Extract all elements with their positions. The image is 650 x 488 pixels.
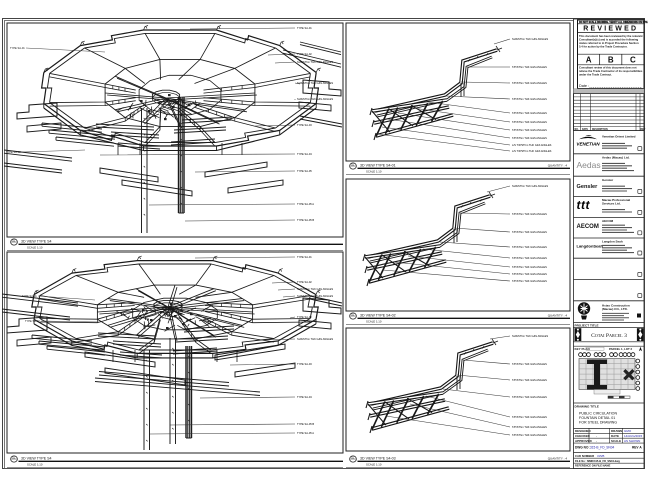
svg-text:SCALE 1:10: SCALE 1:10 [366,319,382,323]
svg-text:14/AUG/2015: 14/AUG/2015 [624,434,643,438]
svg-text:T/P/SThm THK G&S ANGLES: T/P/SThm THK G&S ANGLES [512,272,547,276]
svg-text:3D VIEW TYPE S4-02: 3D VIEW TYPE S4-02 [360,314,396,318]
svg-text:DRAWING TITLE: DRAWING TITLE [575,405,599,409]
svg-text:PROJECT TITLE: PROJECT TITLE [575,323,599,327]
svg-text:APPROVED: APPROVED [575,439,593,443]
svg-text:TYPE SA-02: TYPE SA-02 [297,280,312,284]
svg-text:T/P/SThm THK G&S ANGLES: T/P/SThm THK G&S ANGLES [512,279,547,283]
svg-text:T/P/SThm THK G&S ANGLES: T/P/SThm THK G&S ANGLES [512,378,547,382]
svg-text:Date :: Date : [579,84,589,88]
svg-text:under the Trade Contract.: under the Trade Contract. [579,72,612,76]
svg-text:B: B [608,56,614,65]
svg-text:QUANTITY : 4: QUANTITY : 4 [548,457,568,461]
svg-text:TYPE SA-04: TYPE SA-04 [297,395,312,399]
svg-text:3D VIEW TYPE S4: 3D VIEW TYPE S4 [21,457,52,461]
svg-text:3D VIEW TYPE S4-03: 3D VIEW TYPE S4-03 [360,457,396,461]
svg-text:Gensler: Gensler [577,184,599,190]
svg-text:T/P/SThm THK G&S ANGLES: T/P/SThm THK G&S ANGLES [512,265,547,269]
svg-text:PUBLIC CIRCULATION: PUBLIC CIRCULATION [579,411,617,415]
svg-text:CHECKED: CHECKED [575,434,591,438]
svg-text:FILE No : MMD/315-B_FD_SN04.d: FILE No : MMD/315-B_FD_SN04.dwg [575,459,620,463]
svg-text:3D VIEW TYPE S4-01: 3D VIEW TYPE S4-01 [360,164,396,168]
svg-text:(Macau) CO., LTD.: (Macau) CO., LTD. [602,307,628,311]
svg-text:SHS/SThm THK G&S ANGLES: SHS/SThm THK G&S ANGLES [297,97,333,101]
svg-text:315/B: 315/B [597,454,604,458]
svg-text:TYPE SA-05: TYPE SA-05 [297,169,312,173]
svg-text:T/P/SThm THK G&S ANGLES: T/P/SThm THK G&S ANGLES [512,230,547,234]
svg-text:SHS/SThm THK G&S ANGLES: SHS/SThm THK G&S ANGLES [512,334,548,338]
svg-text:T/P/SThm THK G&S ANGLES: T/P/SThm THK G&S ANGLES [512,395,547,399]
svg-text:DWG NO :: DWG NO : [575,446,590,450]
svg-text:Consultant review of this docu: Consultant review of this document does … [579,66,637,70]
svg-text:TYPE SA-02: TYPE SA-02 [297,315,312,319]
svg-text:L/S T/P/SThm THK G&S ANGLES: L/S T/P/SThm THK G&S ANGLES [512,143,552,147]
svg-text:TYPE SA-05 B: TYPE SA-05 B [297,422,314,426]
svg-text:Services Ltd.: Services Ltd. [602,202,621,206]
svg-text:GMO: GMO [624,429,632,433]
svg-text:T/P/SThm THK G&S ANGLES: T/P/SThm THK G&S ANGLES [512,425,547,429]
svg-text:SCALE: SCALE [611,439,621,443]
svg-text:TYPE SA-02: TYPE SA-02 [6,150,21,154]
svg-text:status referred to in Projec: status referred to in Project Procedure … [579,41,639,45]
svg-text:3D VIEW TYPE S4: 3D VIEW TYPE S4 [21,240,52,244]
svg-text:PARCEL 1, LOT 2: PARCEL 1, LOT 2 [609,347,632,351]
svg-text:T/P/SThm THK G&S ANGLES: T/P/SThm THK G&S ANGLES [512,120,547,124]
svg-text:C: C [630,56,636,65]
svg-text:SCALE 1:10: SCALE 1:10 [366,462,382,466]
svg-text:REV A: REV A [632,446,642,450]
svg-text:VENETIAN: VENETIAN [576,141,600,146]
svg-text:-: - [596,439,597,443]
svg-text:AECOM: AECOM [577,224,599,230]
svg-text:TYPE SA-01: TYPE SA-01 [297,255,312,259]
svg-text:T/P/SThm THK G&S ANGLES: T/P/SThm THK G&S ANGLES [512,81,547,85]
svg-text:A: A [586,56,592,65]
svg-text:REFERENCE ON FILE NAME: REFERENCE ON FILE NAME [575,464,611,468]
svg-text:TYPE SA-05 A: TYPE SA-05 A [297,202,314,206]
svg-text:SHS/SThm THK G&S ANGLES: SHS/SThm THK G&S ANGLES [297,81,333,85]
svg-text:Langdon Seah: Langdon Seah [602,240,623,244]
svg-text:-: - [596,434,597,438]
svg-text:T/P/SThm THK G&S ANGLES: T/P/SThm THK G&S ANGLES [512,128,547,132]
svg-text:LangdonSeah: LangdonSeah [577,244,604,249]
svg-text:This document has been reviewe: This document has been reviewed by the r… [579,34,643,38]
svg-text:T/P/SThm THK G&S ANGLES: T/P/SThm THK G&S ANGLES [512,212,547,216]
svg-text:Consultant(s)(s) and is accord: Consultant(s)(s) and is accorded the fol… [579,37,638,41]
svg-text:SHS/SThm THK G&S ANGLES: SHS/SThm THK G&S ANGLES [297,337,333,341]
svg-text:T/P/SThm THK G&S ANGLES: T/P/SThm THK G&S ANGLES [512,245,547,249]
svg-text:T/P/SThm THK G&S ANGLES: T/P/SThm THK G&S ANGLES [512,111,547,115]
svg-text:CAD NUMBER: CAD NUMBER [575,454,594,458]
svg-text:T/P/SThm THK G&S ANGLES: T/P/SThm THK G&S ANGLES [512,136,547,140]
svg-text:TYPE SA-04: TYPE SA-04 [297,152,312,156]
svg-text:AECOM: AECOM [602,219,614,223]
svg-text:T/P/SThm THK G&S ANGLES: T/P/SThm THK G&S ANGLES [512,65,547,69]
svg-text:SCALE 1:10: SCALE 1:10 [27,462,43,466]
svg-text:SCALE 1:10: SCALE 1:10 [366,169,382,173]
svg-text:DRAWN: DRAWN [611,429,622,433]
svg-text:T/P/SThm THK G&S ANGLES: T/P/SThm THK G&S ANGLES [512,362,547,366]
svg-text:FOR STEEL DRAWING: FOR STEEL DRAWING [579,421,617,425]
svg-text:Venetian Orient Limited: Venetian Orient Limited [602,134,636,138]
svg-text:TYPE SA-05 B: TYPE SA-05 B [297,218,314,222]
svg-text:TYPE SA-01: TYPE SA-01 [297,26,312,30]
svg-text:SCALE 1:10: SCALE 1:10 [27,245,43,249]
svg-text:L/S T/P/SThm THK G&S ANGLES: L/S T/P/SThm THK G&S ANGLES [512,149,552,153]
svg-text:QUANTITY : 4: QUANTITY : 4 [548,314,568,318]
svg-text:TYPE SA-02: TYPE SA-02 [25,319,40,323]
svg-text:T/P/SThm THK G&S ANGLES: T/P/SThm THK G&S ANGLES [512,415,547,419]
svg-text:T/P/SThm THK G&S ANGLES: T/P/SThm THK G&S ANGLES [512,256,547,260]
svg-text:AS SHOWN: AS SHOWN [624,439,640,443]
svg-text:Gensler: Gensler [602,178,614,182]
svg-text:SHS/SThm THK G&S ANGLES: SHS/SThm THK G&S ANGLES [512,37,548,41]
svg-text:TYPE SA-01: TYPE SA-01 [10,46,25,50]
svg-text:T/P/SThm THK G&S ANGLES: T/P/SThm THK G&S ANGLES [512,97,547,101]
svg-text:TYPE SA-03: TYPE SA-03 [297,362,312,366]
svg-text:Aedas (Macau) Ltd.: Aedas (Macau) Ltd. [602,155,630,159]
svg-text:TYPE SA-05 A: TYPE SA-05 A [297,431,314,435]
svg-text:Aedas: Aedas [577,160,601,170]
svg-text:5.4 for action by the Trade Co: 5.4 for action by the Trade Contractor. [579,45,628,49]
svg-text:FOUNTAIN DETAIL 01: FOUNTAIN DETAIL 01 [579,416,615,420]
svg-text:relieve the Trade Contractor o: relieve the Trade Contractor of its resp… [579,69,643,73]
svg-text:TYPE SA-01: TYPE SA-01 [22,294,37,298]
svg-text:SHS/SThm THK G&S ANGLES: SHS/SThm THK G&S ANGLES [297,287,333,291]
svg-text:ttt: ttt [577,198,591,212]
svg-text:REVIEWED: REVIEWED [583,26,638,33]
svg-text:315-B_FD_SN04: 315-B_FD_SN04 [590,446,615,450]
svg-text:SHS/SThm THK G&S ANGLES: SHS/SThm THK G&S ANGLES [512,184,548,188]
svg-text:TYPE SA-03: TYPE SA-03 [297,123,312,127]
svg-text:T/P/SThm THK G&S ANGLES: T/P/SThm THK G&S ANGLES [512,433,547,437]
svg-text:QUANTITY : 4: QUANTITY : 4 [548,164,568,168]
svg-text:DATE: DATE [611,434,619,438]
